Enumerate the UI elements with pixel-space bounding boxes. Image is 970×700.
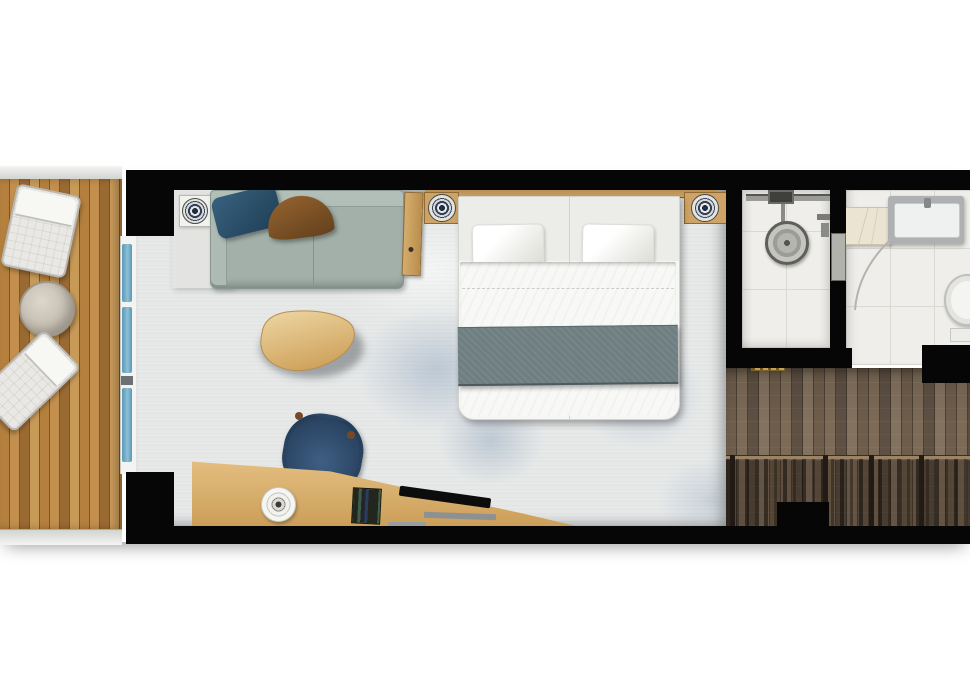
chair-armrest-knob bbox=[347, 431, 355, 439]
balcony-rail-top bbox=[0, 166, 122, 180]
shower-handle bbox=[817, 214, 830, 220]
sink-basin bbox=[894, 203, 960, 238]
faucet-icon bbox=[924, 198, 931, 208]
vanity-sink bbox=[888, 196, 964, 244]
wall-bedroom-shower bbox=[726, 190, 742, 368]
floor-plan-canvas bbox=[0, 0, 970, 700]
ceiling-light-medallion-icon bbox=[182, 198, 208, 224]
wardrobe-divider bbox=[730, 455, 735, 526]
nightstand-lamp-medallion-icon bbox=[691, 194, 719, 222]
wall-top bbox=[126, 170, 970, 190]
balcony-round-table bbox=[19, 281, 75, 337]
chair-armrest-knob bbox=[295, 412, 303, 420]
toilet-tank bbox=[950, 328, 970, 342]
window-glass-pane bbox=[122, 307, 132, 373]
book-stack bbox=[351, 487, 382, 524]
shower-control-panel bbox=[768, 190, 794, 204]
rain-shower-head-icon bbox=[765, 221, 809, 265]
console-knob bbox=[408, 247, 413, 252]
throw-blanket bbox=[458, 325, 679, 386]
wall-bathroom-bottom-right bbox=[922, 345, 970, 383]
pillow-right bbox=[582, 223, 655, 266]
round-tray bbox=[261, 487, 296, 522]
duvet-seam bbox=[462, 288, 674, 289]
bathroom-shelf bbox=[845, 207, 891, 245]
wall-shower-bottom bbox=[726, 348, 852, 368]
shower-mixer bbox=[821, 223, 829, 237]
pillow-left bbox=[472, 223, 545, 266]
entry-door-recess bbox=[777, 502, 829, 528]
wall-corner-top-left bbox=[126, 170, 174, 236]
lounge-chair-headrest bbox=[15, 188, 78, 227]
wardrobe-hanging-clothes bbox=[726, 459, 970, 526]
wardrobe-divider bbox=[919, 455, 924, 526]
window-mullion bbox=[121, 376, 133, 385]
window-glass-pane bbox=[122, 388, 132, 462]
nightstand-lamp-medallion-icon bbox=[428, 194, 456, 222]
wall-bottom bbox=[126, 526, 970, 544]
shower-wall-niche bbox=[831, 233, 846, 281]
window-glass-pane bbox=[122, 244, 132, 302]
balcony-rail-bottom bbox=[0, 529, 122, 545]
wardrobe-divider bbox=[869, 455, 874, 526]
console-table bbox=[402, 192, 424, 277]
